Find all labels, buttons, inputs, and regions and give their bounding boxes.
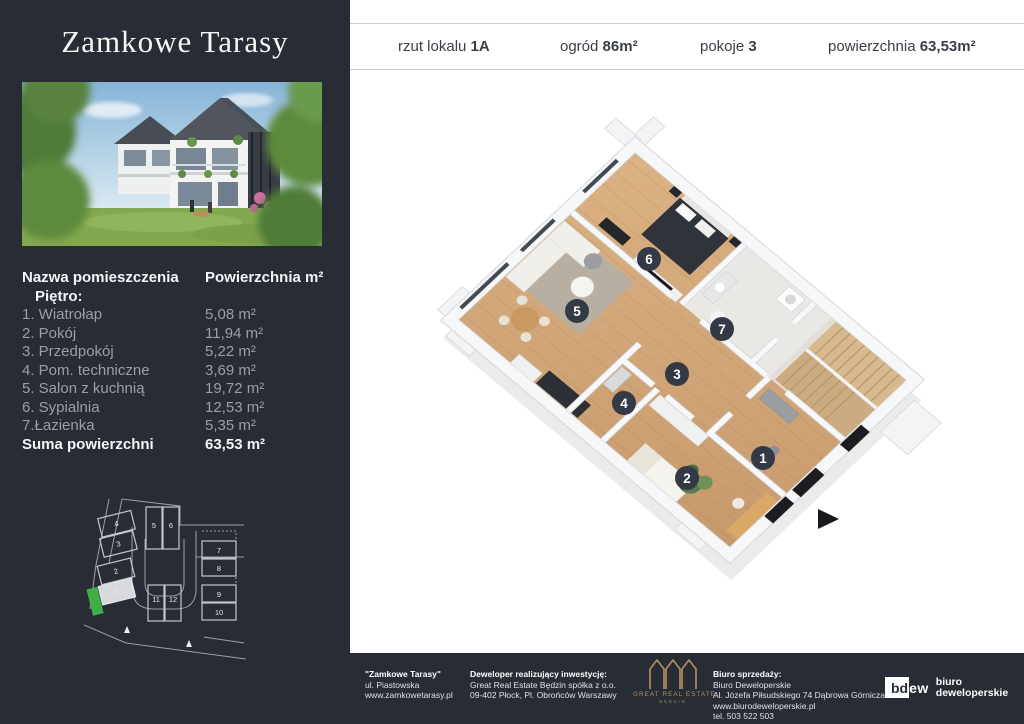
unit-label-7: 7 [217, 546, 221, 555]
room-name: 1. Wiatrołap [22, 306, 205, 325]
svg-text:1: 1 [759, 451, 767, 466]
footer-project-title: "Zamkowe Tarasy" [365, 669, 453, 680]
room-name: 4. Pom. techniczne [22, 362, 205, 381]
info-rooms: pokoje 3 [700, 24, 757, 69]
table-row: 3. Przedpokój5,22 m² [22, 343, 330, 362]
info-garden-label: ogród [560, 38, 598, 55]
room-badge-3: 3 [665, 362, 689, 386]
sidebar: Zamkowe Tarasy [0, 0, 350, 724]
room-table-floor: Piętro: [22, 288, 330, 307]
room-badge-7: 7 [710, 317, 734, 341]
unit-label-9: 9 [217, 590, 221, 599]
room-area: 5,35 m² [205, 417, 330, 436]
floor-label: Piętro: [22, 288, 83, 307]
app-logo: Zamkowe Tarasy [0, 24, 350, 60]
room-table: Nazwa pomieszczenia Powierzchnia m² Pięt… [22, 269, 330, 454]
svg-text:5: 5 [573, 304, 581, 319]
entrance-arrow-icon [818, 509, 839, 529]
footer-col-project: "Zamkowe Tarasy" ul. Piastowska www.zamk… [365, 669, 453, 701]
info-garden: ogród 86m² [560, 24, 638, 69]
unit-label-8: 8 [217, 564, 221, 573]
room-badge-5: 5 [565, 299, 589, 323]
unit-label-6: 6 [169, 521, 173, 530]
room-name: 6. Sypialnia [22, 399, 205, 418]
footer-col-developer: Deweloper realizujący inwestycję: Great … [470, 669, 617, 701]
gre-logo-text: GREAT REAL ESTATE [633, 691, 713, 698]
footer-project-street: ul. Piastowska [365, 680, 453, 691]
footer-sales-title: Biuro sprzedaży: [713, 669, 885, 680]
room-badge-6: 6 [637, 247, 661, 271]
footer: "Zamkowe Tarasy" ul. Piastowska www.zamk… [350, 653, 1024, 724]
room-area: 11,94 m² [205, 325, 330, 344]
svg-text:3: 3 [673, 367, 681, 382]
site-plan: 4 3 2 1 5 6 7 8 9 10 [84, 497, 246, 667]
room-name: 2. Pokój [22, 325, 205, 344]
site-plan-cluster-left: 4 3 2 1 [84, 510, 153, 615]
footer-sales-phone: tel. 503 522 503 [713, 711, 885, 722]
svg-text:4: 4 [620, 396, 628, 411]
room-name: 3. Przedpokój [22, 343, 205, 362]
footer-project-website: www.zamkowetarasy.pl [365, 690, 453, 701]
floor-plan-projected [420, 101, 977, 598]
main-panel: rzut lokalu 1A ogród 86m² pokoje 3 powie… [350, 0, 1024, 724]
col-header-area: Powierzchnia m² [205, 269, 330, 288]
room-badge-1: 1 [751, 446, 775, 470]
photo-cloud [82, 102, 142, 118]
info-unit: rzut lokalu 1A [398, 24, 490, 69]
site-plan-roads [84, 499, 246, 659]
bdew-logo-text: biuro deweloperskie [936, 677, 1008, 698]
table-row: 5. Salon z kuchnią19,72 m² [22, 380, 330, 399]
unit-label-11: 11 [152, 595, 160, 604]
floor-plan: 1 2 3 4 5 6 7 [420, 100, 1020, 620]
col-header-name: Nazwa pomieszczenia [22, 269, 205, 288]
total-value: 63,53 m² [205, 436, 330, 455]
info-rooms-value: 3 [748, 38, 756, 55]
svg-text:7: 7 [718, 322, 726, 337]
room-area: 3,69 m² [205, 362, 330, 381]
footer-developer-address: 09-402 Płock, Pl. Obrońców Warszawy [470, 690, 617, 701]
page: Zamkowe Tarasy [0, 0, 1024, 724]
table-row: 4. Pom. techniczne3,69 m² [22, 362, 330, 381]
great-real-estate-logo: GREAT REAL ESTATE BĘDZIN [633, 659, 713, 704]
info-unit-value: 1A [471, 38, 490, 55]
unit-label-12: 12 [169, 595, 177, 604]
site-plan-arrow-1 [124, 626, 130, 633]
info-area-label: powierzchnia [828, 38, 916, 55]
info-rooms-label: pokoje [700, 38, 744, 55]
bdew-mark-dark: bd [885, 677, 909, 698]
site-plan-boundary [202, 531, 236, 617]
footer-developer-title: Deweloper realizujący inwestycję: [470, 669, 617, 680]
room-area: 5,22 m² [205, 343, 330, 362]
unit-label-10: 10 [215, 608, 223, 617]
unit-label-5: 5 [152, 521, 156, 530]
room-area: 19,72 m² [205, 380, 330, 399]
table-row: 6. Sypialnia12,53 m² [22, 399, 330, 418]
room-area: 5,08 m² [205, 306, 330, 325]
room-name: 7.Łazienka [22, 417, 205, 436]
room-name: 5. Salon z kuchnią [22, 380, 205, 399]
project-photo [22, 82, 322, 246]
room-table-total: Suma powierzchni 63,53 m² [22, 436, 330, 455]
svg-text:6: 6 [645, 252, 653, 267]
footer-sales-website: www.biurodeweloperskie.pl [713, 701, 885, 712]
info-unit-label: rzut lokalu [398, 38, 466, 55]
room-badge-2: 2 [675, 466, 699, 490]
info-area: powierzchnia 63,53m² [828, 24, 976, 69]
bdew-mark-light: ew [909, 680, 929, 696]
room-table-header: Nazwa pomieszczenia Powierzchnia m² [22, 269, 330, 288]
table-row: 2. Pokój11,94 m² [22, 325, 330, 344]
table-row: 7.Łazienka5,35 m² [22, 417, 330, 436]
unit-label-3: 3 [115, 539, 121, 549]
gre-arches-icon [647, 659, 699, 689]
bdew-mark-icon: bdew [885, 677, 929, 698]
gre-logo-subtext: BĘDZIN [633, 699, 713, 704]
footer-sales-address: Al. Józefa Piłsudskiego 74 Dąbrowa Górni… [713, 690, 885, 701]
unit-label-4: 4 [113, 519, 119, 529]
top-info-bar: rzut lokalu 1A ogród 86m² pokoje 3 powie… [350, 23, 1024, 70]
info-garden-value: 86m² [603, 38, 638, 55]
table-row: 1. Wiatrołap5,08 m² [22, 306, 330, 325]
footer-sales-name: Biuro Deweloperskie [713, 680, 885, 691]
room-badge-4: 4 [612, 391, 636, 415]
bdew-logo: bdew biuro deweloperskie [885, 677, 1008, 698]
room-area: 12,53 m² [205, 399, 330, 418]
footer-developer-name: Great Real Estate Będzin spółka z o.o. [470, 680, 617, 691]
svg-text:2: 2 [683, 471, 691, 486]
info-area-value: 63,53m² [920, 38, 976, 55]
site-plan-arrow-2 [186, 640, 192, 647]
footer-col-sales-office: Biuro sprzedaży: Biuro Deweloperskie Al.… [713, 669, 885, 722]
total-label: Suma powierzchni [22, 436, 205, 455]
unit-label-2: 2 [113, 566, 119, 576]
